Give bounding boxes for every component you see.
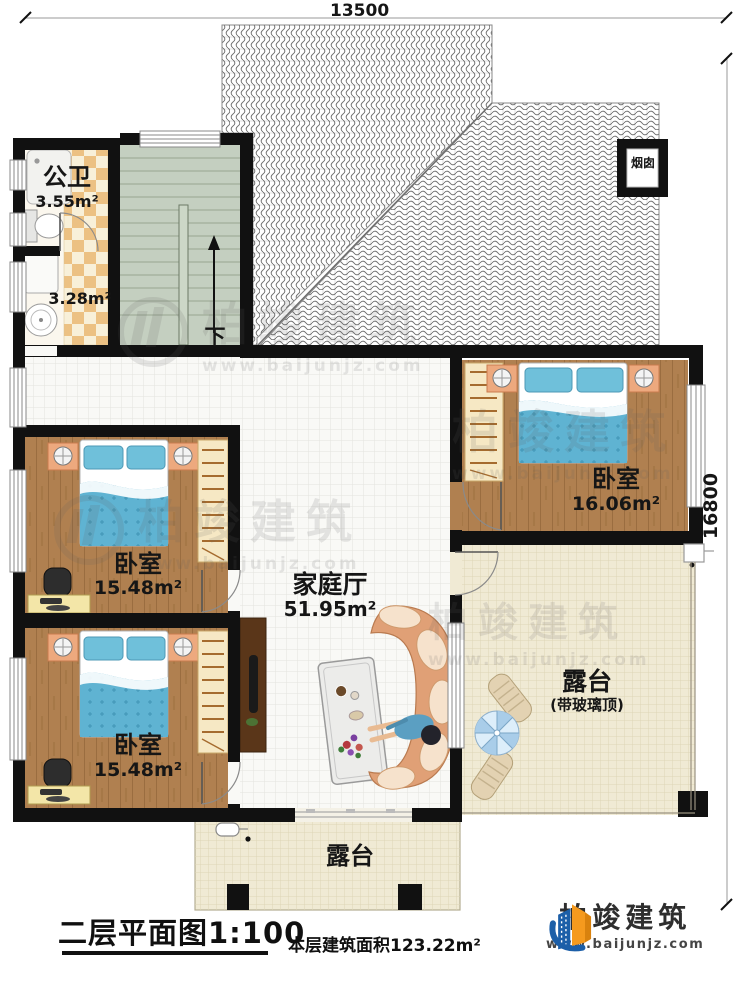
floor-area-note: 本层建筑面积123.22m² [288, 931, 481, 956]
plan-title: 二层平面图1:100 [58, 910, 305, 952]
opening-terrace-bottom [295, 808, 412, 822]
floor-plan-page: 柏竣建筑 www.baijunjz.com 柏竣建筑 www.baijunjz.… [0, 0, 750, 981]
room-label-bedroom-mid: 卧室 [80, 552, 196, 578]
umbrella-table [475, 711, 519, 755]
room-area-public-bath: 3.55m² [24, 193, 110, 210]
room-label-bedroom-right: 卧室 [556, 467, 676, 493]
room-area-bedroom-bottom: 15.48m² [80, 760, 196, 781]
dimension-right: 16800 [700, 471, 722, 541]
terrace-pillar [227, 884, 249, 910]
terrace-pillar [398, 884, 422, 910]
room-label-terrace-bottom: 露台 [290, 844, 410, 870]
stair-down-label: 下 [196, 326, 234, 349]
chimney-label: 烟囱 [624, 157, 662, 170]
room-label-family-hall: 家庭厅 [260, 571, 400, 598]
desk-chair [44, 759, 71, 787]
toilet-bowl [35, 214, 63, 238]
room-label-terrace-right: 露台 [527, 668, 647, 695]
vanity-cabinet [24, 253, 58, 293]
room-label-bedroom-bottom: 卧室 [80, 733, 196, 759]
dimension-top: 13500 [330, 1, 389, 21]
room-area-bedroom-right: 16.06m² [556, 494, 676, 515]
brand-logo-block: 柏竣建筑 www.baijunjz.com [546, 896, 704, 952]
brand-logo-icon [546, 896, 598, 956]
roof [222, 25, 668, 347]
room-area-bedroom-mid: 15.48m² [80, 578, 196, 599]
room-label-public-bath: 公卫 [24, 165, 110, 191]
tv [249, 655, 258, 713]
plant [246, 718, 258, 726]
room-area-family-hall: 51.95m² [260, 599, 400, 621]
plan-title-underline [62, 951, 268, 955]
room-note-terrace-right: (带玻璃顶) [517, 697, 657, 713]
room-area-wash: 3.28m² [40, 290, 120, 307]
desk-chair [44, 568, 71, 596]
